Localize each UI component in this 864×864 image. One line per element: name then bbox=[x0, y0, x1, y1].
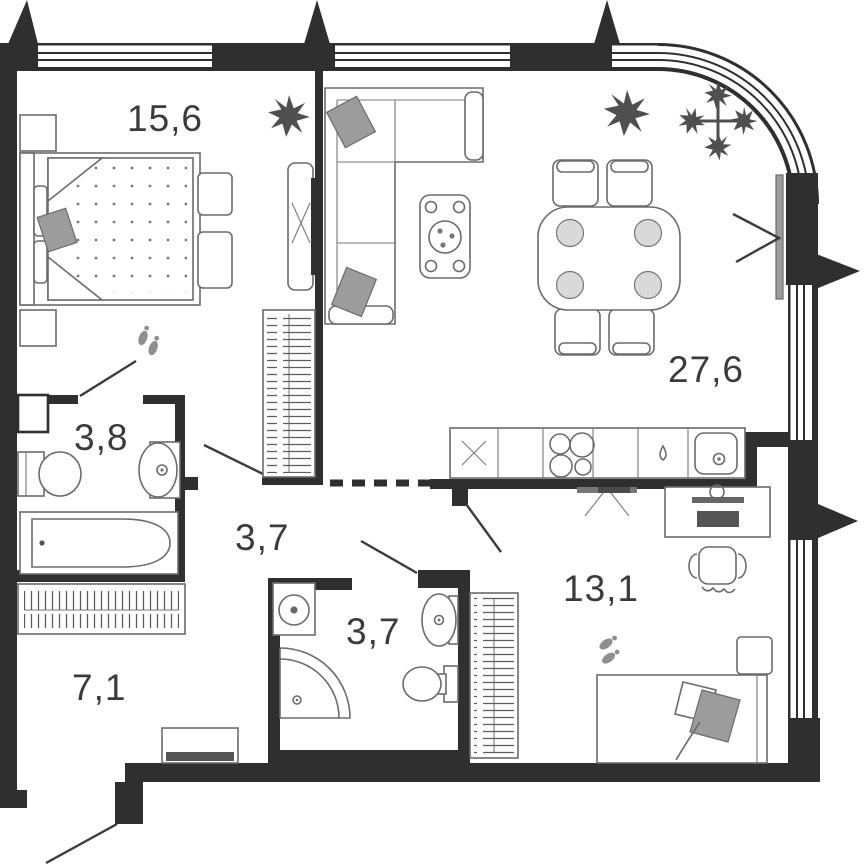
dining-set bbox=[538, 160, 680, 355]
door-balcony-swing bbox=[733, 214, 779, 262]
bench-cushion bbox=[198, 232, 232, 288]
office-chair bbox=[689, 547, 746, 593]
nightstand bbox=[20, 115, 56, 151]
room-hallway: 7,1 bbox=[18, 584, 238, 763]
wall-left bbox=[0, 43, 17, 808]
axis-marker-icon bbox=[594, 0, 620, 44]
wardrobe bbox=[470, 593, 518, 758]
wall-entrance-step bbox=[115, 782, 143, 824]
tv-unit bbox=[288, 163, 315, 290]
window-top-2 bbox=[335, 43, 510, 71]
wall-bedroom-bath bbox=[143, 395, 177, 404]
wall-top bbox=[0, 43, 38, 71]
door-entrance-swing bbox=[46, 824, 117, 863]
washing-machine bbox=[273, 583, 315, 635]
footprints-icon bbox=[134, 324, 163, 356]
dining-table bbox=[538, 207, 680, 310]
tv-bracket bbox=[577, 487, 637, 516]
wall-bath2-right bbox=[458, 570, 470, 763]
window-arrow-icon bbox=[804, 498, 858, 544]
duct-shaft bbox=[18, 395, 48, 432]
plant-icon bbox=[268, 95, 310, 137]
wall-top bbox=[510, 43, 612, 71]
room-bath-ensuite: 3,8 bbox=[18, 395, 180, 574]
wall-bedroom-living bbox=[315, 71, 323, 477]
shower bbox=[280, 648, 350, 718]
wall-kitchen-stub bbox=[745, 432, 757, 489]
room-label-corridor: 3,7 bbox=[235, 517, 289, 558]
toilet bbox=[403, 666, 458, 702]
room-living-kitchen: 27,6 bbox=[263, 81, 763, 478]
room-bath-small: 3,7 bbox=[273, 583, 458, 718]
room-label-bath-small: 3,7 bbox=[346, 611, 400, 652]
window-top-1 bbox=[38, 43, 212, 71]
bathtub bbox=[20, 512, 178, 574]
door-bedroom-swing bbox=[204, 445, 263, 474]
window-top-3 bbox=[612, 43, 658, 71]
kitchen-counter bbox=[450, 428, 745, 478]
window-right-2 bbox=[788, 540, 818, 718]
door-bath2-swing bbox=[361, 541, 417, 573]
nightstand bbox=[737, 637, 772, 674]
axis-marker-icon bbox=[304, 0, 330, 44]
room-label-living: 27,6 bbox=[668, 349, 744, 390]
plant-icon bbox=[604, 90, 650, 136]
chair bbox=[553, 160, 598, 206]
bench-cushion bbox=[198, 173, 232, 215]
room-second: 13,1 bbox=[470, 485, 772, 763]
wall-left-foot bbox=[17, 790, 27, 808]
door-ensuite-swing bbox=[80, 361, 136, 396]
single-bed bbox=[597, 675, 767, 763]
wardrobe-tall bbox=[263, 310, 315, 477]
floor-plan-canvas: 15,6 bbox=[0, 0, 864, 864]
shoe-bench bbox=[162, 728, 238, 763]
window-right-1 bbox=[788, 285, 818, 440]
nightstand bbox=[20, 310, 56, 346]
wall-wardrobe-cap bbox=[262, 477, 323, 485]
wall-door-jamb bbox=[452, 489, 468, 506]
wall-door-jamb bbox=[185, 477, 198, 490]
axis-marker-icon bbox=[8, 0, 38, 44]
room-label-second: 13,1 bbox=[563, 568, 639, 609]
hall-closet bbox=[18, 584, 185, 634]
desk bbox=[665, 485, 770, 537]
room-label-bedroom: 15,6 bbox=[127, 98, 203, 139]
wall-bath2-bottom bbox=[268, 750, 470, 763]
toilet bbox=[18, 452, 81, 496]
room-label-hallway: 7,1 bbox=[72, 667, 126, 708]
kitchen-sink-icon bbox=[695, 433, 737, 474]
chair bbox=[555, 309, 600, 355]
coffee-table bbox=[420, 195, 470, 278]
floor-plan: 15,6 bbox=[0, 0, 864, 864]
chair bbox=[609, 309, 654, 355]
room-label-bath-ensuite: 3,8 bbox=[74, 417, 128, 458]
footprints-icon bbox=[593, 633, 627, 666]
door-room2-swing bbox=[466, 504, 501, 552]
washbasin bbox=[422, 594, 458, 646]
wall-bottom bbox=[125, 763, 820, 782]
double-bed bbox=[20, 153, 200, 305]
washbasin bbox=[139, 442, 180, 498]
wall-top bbox=[212, 43, 335, 71]
chair bbox=[607, 160, 652, 206]
